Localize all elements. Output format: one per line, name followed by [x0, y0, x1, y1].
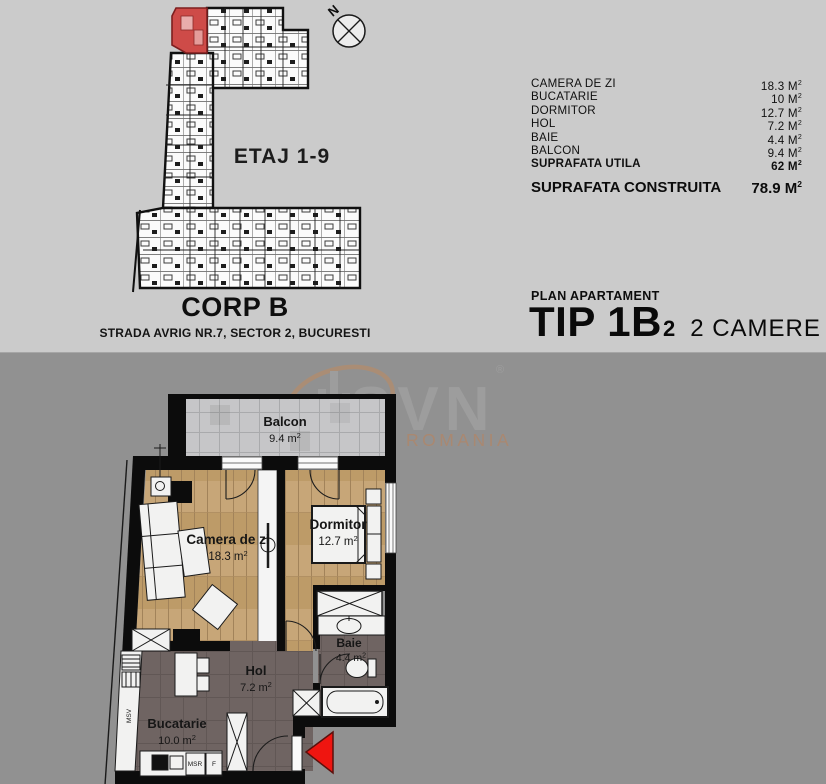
built-area-row: SUPRAFATA CONSTRUITA 78.9 M2: [531, 179, 802, 197]
appliance-label-msv: MSV: [126, 708, 133, 723]
header-section: N ETAJ 1-9 CORP B STRADA AVRIG NR.7, SEC…: [0, 0, 826, 352]
etaj-label: ETAJ 1-9: [234, 145, 330, 168]
tip-sub: 2: [663, 316, 675, 342]
sofa: [139, 501, 185, 600]
svg-text:12.7 m2: 12.7 m2: [318, 534, 357, 548]
compass-icon: N: [325, 2, 365, 47]
apartment-floorplan: Balcon 9.4 m2 Camera de zi 18.3 m2 Dormi…: [0, 353, 826, 784]
wardrobe: [317, 591, 382, 616]
room-label-camera: Camera de zi: [186, 532, 269, 547]
compass-letter: N: [325, 2, 342, 20]
area-row: BAIE4.4 M2: [531, 131, 802, 144]
building-key-plan: N ETAJ 1-9: [0, 0, 470, 300]
kitchen-sink-drainer: [170, 756, 183, 769]
entrance-door-leaf: [292, 736, 302, 771]
room-label-hol: Hol: [246, 663, 267, 678]
area-row: BALCON9.4 M2: [531, 144, 802, 157]
floorplan-section: SVN ® ROMANIA: [0, 352, 826, 784]
svg-text:4.4 m2: 4.4 m2: [336, 652, 366, 664]
shaft-box: [293, 690, 320, 716]
address: STRADA AVRIG NR.7, SECTOR 2, BUCURESTI: [0, 326, 470, 340]
nightstand: [366, 489, 381, 504]
shaft-box: [151, 477, 171, 496]
svg-text:7.2 m2: 7.2 m2: [240, 680, 272, 694]
floorplan-sheet: N ETAJ 1-9 CORP B STRADA AVRIG NR.7, SEC…: [0, 0, 826, 784]
svg-text:18.3 m2: 18.3 m2: [208, 549, 247, 563]
svg-text:9.4 m2: 9.4 m2: [269, 431, 301, 445]
area-table: CAMERA DE ZI18.3 M2 BUCATARIE10 M2 DORMI…: [531, 77, 802, 171]
area-row-total: SUPRAFATA UTILA62 M2: [531, 157, 802, 170]
area-row: CAMERA DE ZI18.3 M2: [531, 77, 802, 90]
kitchen-sink: [152, 755, 168, 770]
room-label-bucatarie: Bucatarie: [147, 716, 206, 731]
chair: [197, 658, 209, 673]
living-closet: [132, 629, 170, 651]
rooms-count: 2 CAMERE: [690, 315, 821, 343]
nightstand: [366, 564, 381, 579]
appliance-label-f: F: [212, 761, 216, 768]
kitchen-table: [175, 653, 197, 696]
room-label-baie: Baie: [336, 636, 362, 650]
bathtub: [322, 687, 388, 717]
bedroom-window: [386, 483, 396, 553]
corp-title: CORP B: [0, 292, 470, 323]
room-label-balcon: Balcon: [263, 414, 306, 429]
apartment-type-title: TIP 1B 2 2 CAMERE: [529, 301, 821, 343]
chair: [197, 676, 209, 691]
svg-text:10.0 m2: 10.0 m2: [158, 733, 196, 747]
tip-label: TIP 1B: [529, 301, 662, 343]
shaft-box: [227, 713, 247, 771]
appliance-label-msr: MSR: [188, 761, 203, 768]
highlighted-unit: [172, 8, 207, 53]
room-label-dormitor: Dormitor: [310, 517, 368, 532]
area-row: DORMITOR12.7 M2: [531, 104, 802, 117]
